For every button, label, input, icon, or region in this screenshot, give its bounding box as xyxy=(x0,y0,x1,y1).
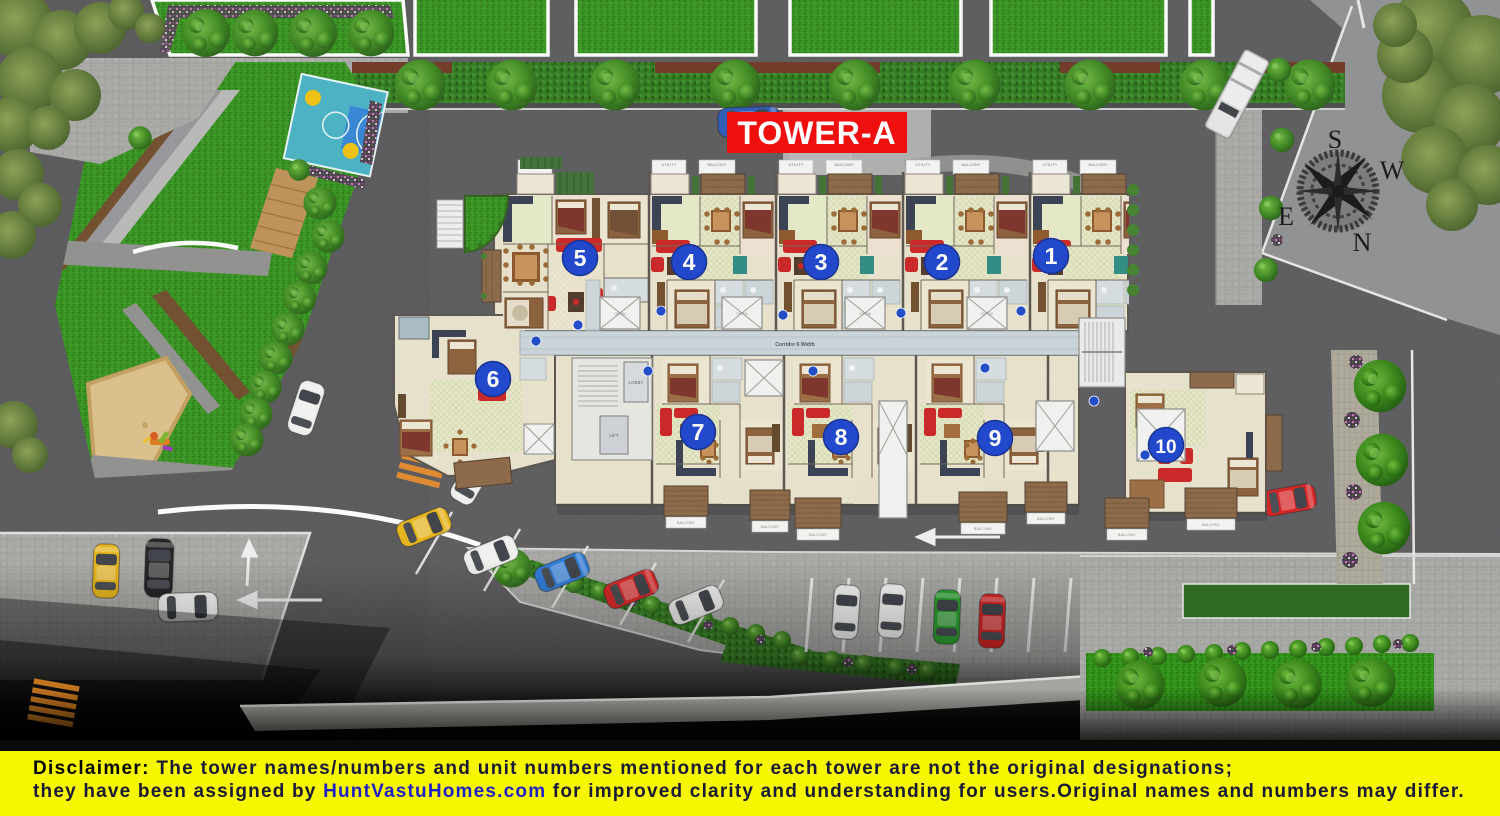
svg-text:TOWER-A: TOWER-A xyxy=(737,115,896,151)
svg-text:they have been assigned by Hun: they have been assigned by HuntVastuHome… xyxy=(33,781,1465,802)
svg-text:Disclaimer: The tower names/nu: Disclaimer: The tower names/numbers and … xyxy=(33,758,1233,779)
